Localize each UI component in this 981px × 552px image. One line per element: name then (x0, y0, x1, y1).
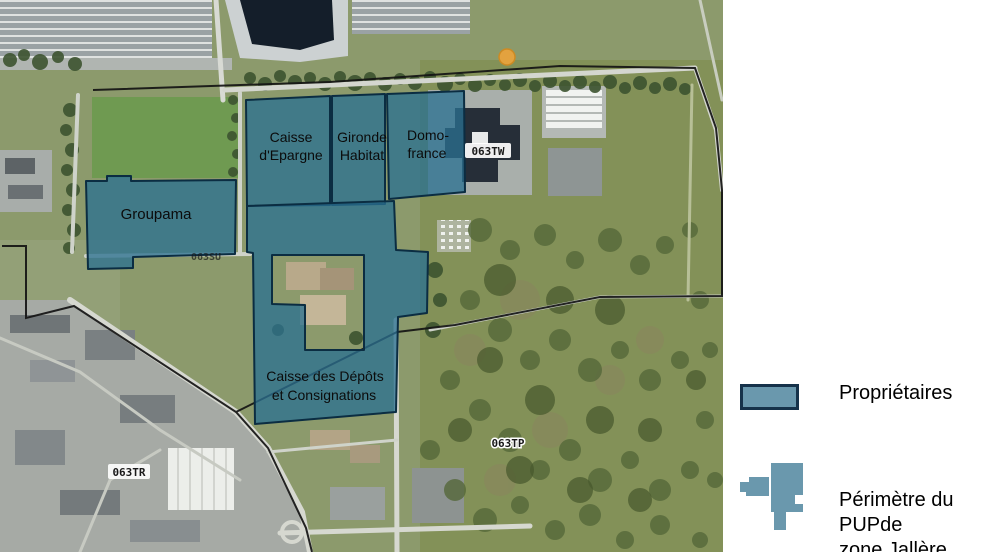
road-label-063TW: 063TW (471, 145, 504, 158)
perimeter-shape-icon (737, 460, 815, 540)
label-gironde-habitat-1: Gironde (337, 129, 387, 145)
aerial-map-canvas: Groupama Caisse d'Epargne Gironde Habita… (0, 0, 723, 552)
aerial-map: Groupama Caisse d'Epargne Gironde Habita… (0, 0, 723, 552)
label-groupama: Groupama (121, 206, 193, 223)
perimetre-label: Périmètre du PUPde zone Jallère (839, 488, 981, 552)
label-caisse-des-depots-1: Caisse des Dépôts (266, 368, 384, 384)
proprietaires-swatch (740, 384, 799, 410)
label-caisse-epargne-2: d'Epargne (259, 147, 323, 163)
legend: Propriétaires Périmètre du PUPde zone Ja… (723, 0, 981, 552)
poi-dot (499, 49, 515, 65)
label-gironde-habitat-2: Habitat (340, 147, 384, 163)
legend-item-proprietaires: Propriétaires (740, 384, 799, 410)
label-domo-france-1: Domo- (407, 127, 449, 143)
proprietaires-label: Propriétaires (839, 382, 952, 405)
map-figure: Groupama Caisse d'Epargne Gironde Habita… (0, 0, 981, 552)
road-label-063TP: 063TP (491, 437, 524, 450)
road-label-063TR: 063TR (112, 466, 145, 479)
label-caisse-des-depots-2: et Consignations (272, 387, 376, 403)
perimetre-label-line1: Périmètre du PUPde (839, 488, 981, 538)
label-caisse-epargne-1: Caisse (270, 129, 313, 145)
perimetre-label-line2: zone Jallère (839, 538, 981, 552)
road-label-063SU: 063SU (191, 252, 221, 263)
label-domo-france-2: france (408, 145, 447, 161)
